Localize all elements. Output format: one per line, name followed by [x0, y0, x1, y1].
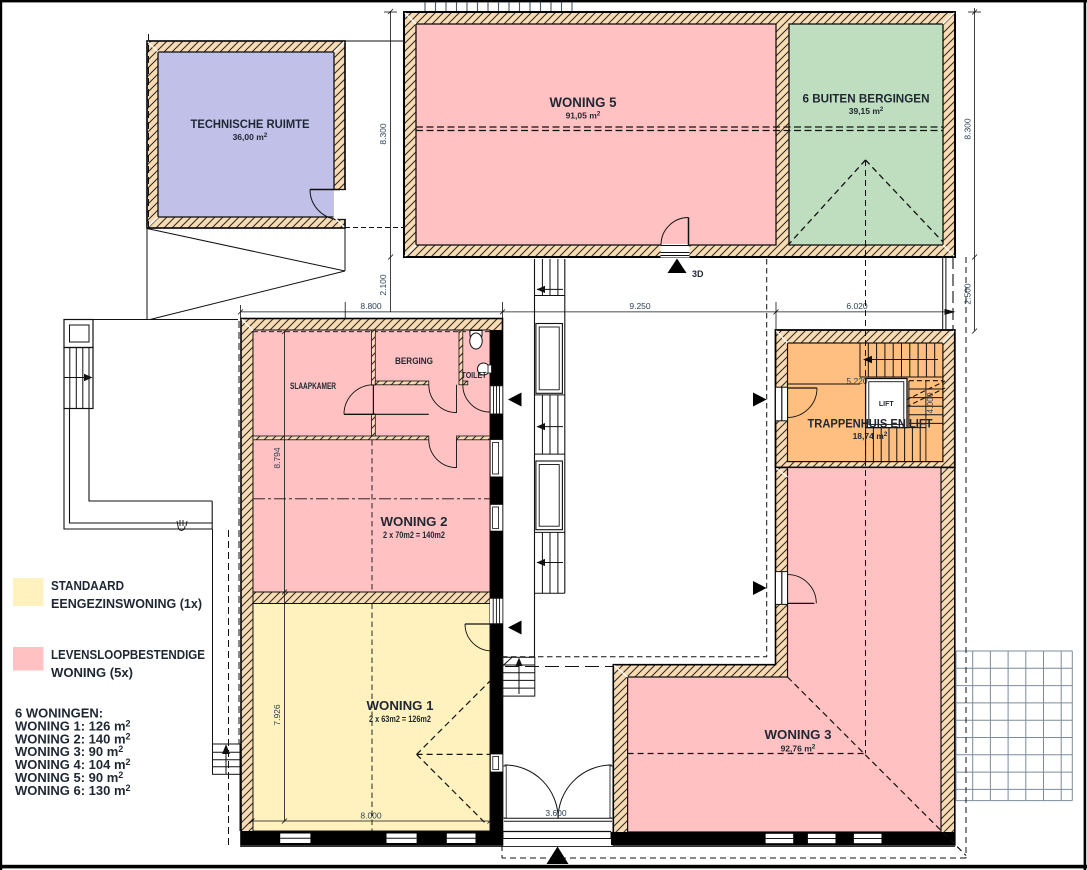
svg-text:36,00 m2: 36,00 m2: [233, 132, 268, 142]
svg-text:6 BUITEN BERGINGEN: 6 BUITEN BERGINGEN: [803, 92, 930, 106]
svg-text:8.794: 8.794: [272, 447, 282, 469]
svg-text:9.250: 9.250: [629, 301, 651, 311]
svg-text:LEVENSLOOPBESTENDIGE: LEVENSLOOPBESTENDIGE: [51, 648, 205, 662]
svg-text:8.000: 8.000: [360, 811, 382, 821]
svg-text:2 x 63m2 = 126m2: 2 x 63m2 = 126m2: [369, 714, 431, 724]
svg-text:2.500: 2.500: [963, 283, 973, 305]
svg-text:TECHNISCHE RUIMTE: TECHNISCHE RUIMTE: [191, 117, 310, 131]
svg-text:BERGING: BERGING: [395, 356, 433, 367]
svg-text:8.800: 8.800: [360, 301, 382, 311]
svg-text:STANDAARD: STANDAARD: [51, 579, 124, 593]
svg-text:TRAPPENHUIS EN LIFT: TRAPPENHUIS EN LIFT: [808, 417, 934, 431]
svg-text:7.926: 7.926: [272, 704, 282, 726]
svg-text:2 x 70m2 = 140m2: 2 x 70m2 = 140m2: [383, 530, 445, 540]
svg-text:WONING 2: WONING 2: [381, 514, 448, 529]
svg-text:WONING 3: WONING 3: [765, 727, 832, 742]
svg-text:39,15 m2: 39,15 m2: [849, 106, 884, 116]
svg-text:3.600: 3.600: [545, 808, 567, 818]
svg-text:4.000: 4.000: [925, 392, 935, 414]
svg-text:2.100: 2.100: [378, 274, 388, 296]
svg-text:LIFT: LIFT: [879, 401, 894, 408]
svg-text:WONING (5x): WONING (5x): [51, 666, 133, 680]
svg-text:8.300: 8.300: [378, 123, 388, 145]
svg-text:6.020: 6.020: [846, 301, 868, 311]
svg-text:18,74 m2: 18,74 m2: [853, 431, 888, 441]
svg-text:92,76 m2: 92,76 m2: [781, 744, 816, 754]
svg-text:SLAAPKAMER: SLAAPKAMER: [290, 381, 336, 392]
svg-text:TOILET: TOILET: [462, 371, 487, 380]
svg-text:5.220: 5.220: [846, 376, 868, 386]
svg-text:EENGEZINSWONING (1x): EENGEZINSWONING (1x): [51, 597, 202, 611]
svg-text:91,05 m2: 91,05 m2: [566, 111, 601, 121]
svg-text:WONING 1: WONING 1: [367, 698, 434, 713]
svg-text:8.300: 8.300: [963, 118, 973, 140]
svg-text:3D: 3D: [692, 269, 704, 279]
svg-text:WONING 5: WONING 5: [550, 95, 617, 110]
svg-text:WONING 6: 130 m2: WONING 6: 130 m2: [15, 783, 131, 798]
